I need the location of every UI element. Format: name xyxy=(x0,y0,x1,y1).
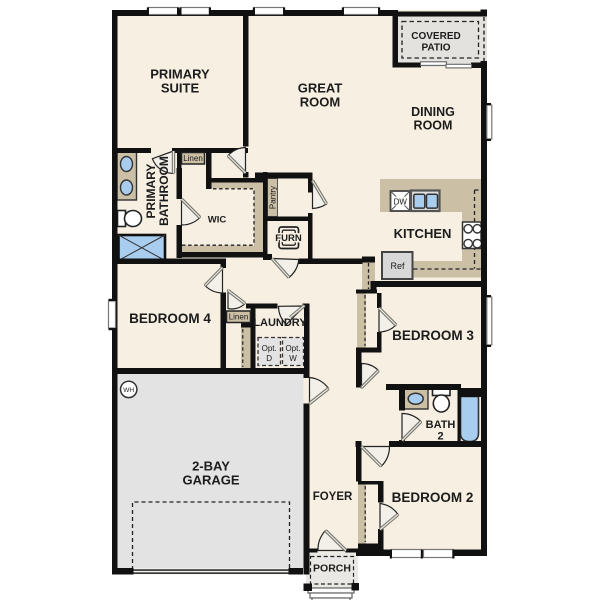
svg-text:Opt.: Opt. xyxy=(285,344,300,353)
svg-text:2: 2 xyxy=(437,431,443,443)
svg-text:ROOM: ROOM xyxy=(300,95,340,110)
svg-text:Opt.: Opt. xyxy=(262,344,277,353)
svg-text:PATIO: PATIO xyxy=(421,43,450,54)
svg-text:BEDROOM 3: BEDROOM 3 xyxy=(392,328,474,343)
svg-text:LAUNDRY: LAUNDRY xyxy=(253,317,307,329)
svg-text:W: W xyxy=(289,354,297,363)
svg-text:FURN: FURN xyxy=(275,233,302,244)
svg-text:SUITE: SUITE xyxy=(161,81,200,96)
svg-text:ROOM: ROOM xyxy=(414,119,453,133)
svg-text:WH: WH xyxy=(123,387,134,394)
svg-text:BEDROOM 4: BEDROOM 4 xyxy=(129,311,211,326)
svg-text:KITCHEN: KITCHEN xyxy=(394,226,452,241)
svg-text:WIC: WIC xyxy=(208,215,227,226)
svg-text:BATH: BATH xyxy=(426,419,456,431)
svg-text:D: D xyxy=(266,354,272,363)
svg-text:GARAGE: GARAGE xyxy=(182,473,239,488)
svg-text:Pantry: Pantry xyxy=(268,186,277,209)
svg-text:Linen: Linen xyxy=(183,154,203,163)
svg-text:COVERED: COVERED xyxy=(411,31,460,42)
svg-text:2-BAY: 2-BAY xyxy=(192,459,230,474)
svg-text:DINING: DINING xyxy=(411,105,455,119)
svg-text:DW: DW xyxy=(394,198,408,207)
svg-text:Linen: Linen xyxy=(229,313,249,322)
svg-text:BEDROOM 2: BEDROOM 2 xyxy=(392,490,474,505)
svg-text:PRIMARY: PRIMARY xyxy=(150,67,210,82)
svg-text:PRIMARY: PRIMARY xyxy=(144,164,158,219)
svg-text:BATHROOM: BATHROOM xyxy=(157,156,171,226)
svg-text:GREAT: GREAT xyxy=(298,81,343,96)
svg-text:PORCH: PORCH xyxy=(313,563,351,575)
svg-text:FOYER: FOYER xyxy=(313,491,353,503)
svg-text:Ref: Ref xyxy=(390,261,405,271)
